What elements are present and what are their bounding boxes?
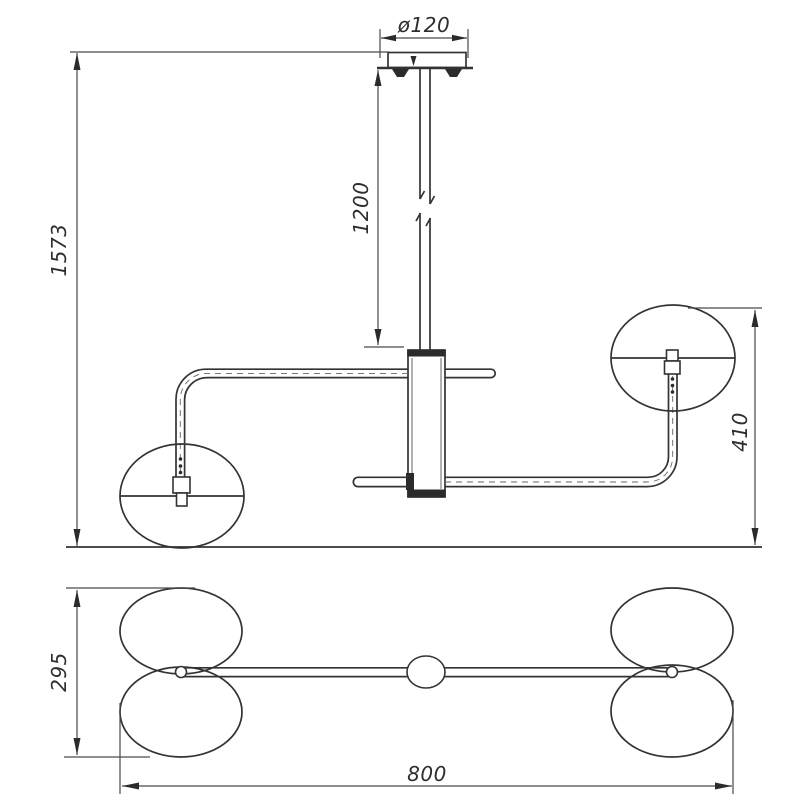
- canopy-diameter-label: ø120: [397, 13, 450, 37]
- dimension-rod-length: 1200: [349, 70, 404, 347]
- left-globe-socket-nut: [177, 493, 188, 506]
- suspension-rod: [416, 68, 435, 350]
- overall-height-label: 1573: [47, 224, 71, 277]
- lower-right-arm: [445, 374, 677, 487]
- lower-left-stub-arm: [353, 477, 408, 486]
- rod-length-label: 1200: [349, 182, 373, 235]
- dimension-arm-drop: 410: [688, 308, 762, 545]
- right-globe-socket: [665, 361, 681, 374]
- plan-globe-right-top: [611, 588, 733, 672]
- plan-width-label: 800: [407, 762, 447, 786]
- dimension-plan-depth: 295: [47, 588, 195, 757]
- upper-left-arm: [176, 369, 408, 478]
- plan-globe-right-bottom: [611, 665, 733, 757]
- plan-globe-left-top: [120, 588, 242, 674]
- plan-left-pivot: [176, 667, 187, 678]
- right-globe-socket-nut: [667, 350, 679, 361]
- arm-drop-label: 410: [728, 412, 752, 452]
- left-globe-socket: [173, 477, 190, 493]
- plan-central-hub: [407, 656, 445, 688]
- plan-depth-label: 295: [47, 652, 71, 692]
- dimension-plan-width: 800: [120, 700, 733, 794]
- plan-globe-left-bottom: [120, 667, 242, 757]
- front-view: ø120 1200 1573 410: [47, 13, 762, 548]
- right-globe-shade: [611, 305, 735, 411]
- upper-right-stub-arm: [445, 369, 495, 377]
- canopy-screw-right: [445, 69, 462, 77]
- plan-right-pivot: [667, 667, 678, 678]
- technical-drawing: ø120 1200 1573 410: [0, 0, 800, 800]
- dimension-canopy-diameter: ø120: [380, 13, 468, 58]
- body-top-cap: [407, 350, 446, 357]
- body-bottom-cap: [407, 490, 446, 498]
- drawing-canvas: ø120 1200 1573 410: [0, 0, 800, 800]
- central-body: [406, 350, 446, 497]
- canopy-clip-mark: [411, 56, 417, 66]
- ceiling-canopy: [377, 53, 473, 78]
- dimension-overall-height: 1573: [47, 52, 389, 546]
- left-globe-shade: [120, 444, 244, 548]
- canopy-screw-left: [392, 69, 409, 77]
- plan-view: 295 800: [47, 588, 733, 794]
